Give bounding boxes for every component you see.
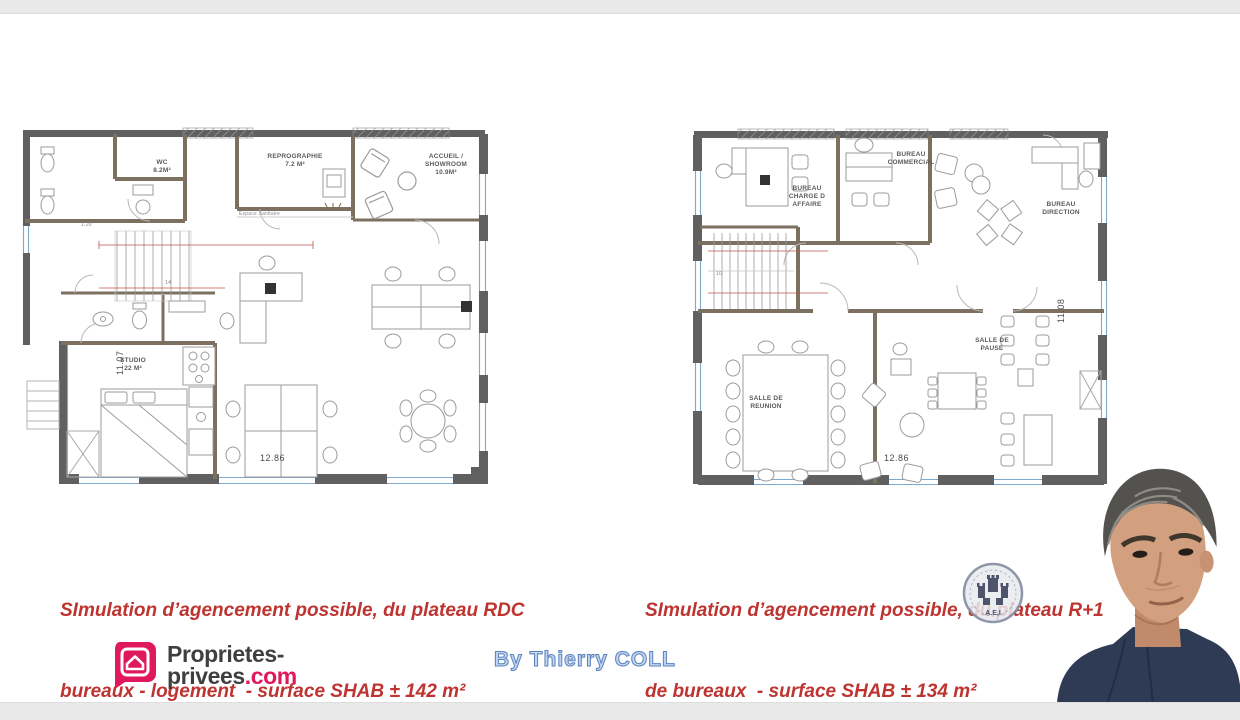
logo-line1: Proprietes- xyxy=(167,643,297,665)
room-label-wc: WC 8.2M² xyxy=(139,159,185,175)
room-label-salle-de-pause: SALLE DE PAUSE xyxy=(964,337,1020,353)
caption-r1: SImulation d’agencement possible, du pla… xyxy=(645,543,1104,720)
house-in-speech-bubble-icon xyxy=(110,640,158,690)
meeting-room-furniture xyxy=(726,341,845,481)
caption-rdc-line1: SImulation d’agencement possible, du pla… xyxy=(60,597,525,624)
studio-bed xyxy=(101,387,213,477)
notary-stamp: A.E.I xyxy=(961,561,1025,630)
room-label-espace-sanitaire: Espace Sanitaire xyxy=(239,211,301,217)
room-label-bureau-direction: BUREAU DIRECTION xyxy=(1030,201,1092,217)
logo-line2: privees.com xyxy=(167,665,297,687)
dim-height-r1: 11.08 xyxy=(1056,299,1066,323)
studio-kitchen xyxy=(183,347,215,385)
caption-r1-line1: SImulation d’agencement possible, du pla… xyxy=(645,597,1104,624)
floorplan-rdc-drawing: 1.20 14 xyxy=(15,123,495,495)
floorplan-r1: 10 xyxy=(688,123,1113,495)
desk-block-bottom xyxy=(226,385,337,477)
office-commercial-furniture xyxy=(846,138,892,206)
stair-count-label: 14 xyxy=(165,280,171,286)
floorplan-r1-drawing: 10 xyxy=(688,123,1113,495)
exterior-stair xyxy=(27,381,59,429)
agent-portrait-illustration xyxy=(1055,455,1240,705)
stair-dim-label: 1.20 xyxy=(81,222,92,228)
agency-logo-text: Proprietes- privees.com xyxy=(167,643,297,687)
floorplan-rdc: 1.20 14 xyxy=(15,123,495,495)
dim-width-r1: 12.86 xyxy=(884,453,909,463)
top-gray-bar xyxy=(0,0,1240,14)
caption-rdc: SImulation d’agencement possible, du pla… xyxy=(60,543,525,720)
studio-bathroom xyxy=(93,301,205,329)
byline-text: By Thierry COLL xyxy=(494,648,676,672)
room-label-reprographie: REPROGRAPHIE 7.2 M² xyxy=(255,153,335,169)
room-label-bureau-commercial: BUREAU COMMERCIAL xyxy=(876,151,946,167)
stair-count-label: 10 xyxy=(716,271,722,277)
office-direction-furniture xyxy=(934,143,1100,246)
bottom-gray-bar xyxy=(0,702,1240,720)
room-label-salle-de-reunion: SALLE DE REUNION xyxy=(738,395,794,411)
stamp-text: A.E.I xyxy=(985,610,1001,617)
closet xyxy=(1080,371,1101,409)
castle-seal-icon: A.E.I xyxy=(961,561,1025,625)
dim-width-rdc: 12.86 xyxy=(260,453,285,463)
desk-block-top xyxy=(372,267,472,348)
logo-tld: .com xyxy=(245,663,297,689)
agency-logo: Proprietes- privees.com xyxy=(110,640,297,690)
open-area-furniture xyxy=(861,343,986,437)
room-label-accueil-showroom: ACCUEIL / SHOWROOM 10.9M² xyxy=(407,153,485,176)
wardrobe xyxy=(67,431,99,477)
flyer-canvas: 1.20 14 xyxy=(0,0,1240,720)
desk-left xyxy=(220,256,302,343)
room-label-bureau-charge-daffaire: BUREAU CHARGE D AFFAIRE xyxy=(776,185,838,208)
agent-photo xyxy=(1055,455,1240,710)
dim-height-rdc: 11.07 xyxy=(115,351,125,375)
caption-r1-line2: de bureaux - surface SHAB ± 134 m² xyxy=(645,678,1104,705)
round-table xyxy=(400,390,456,452)
